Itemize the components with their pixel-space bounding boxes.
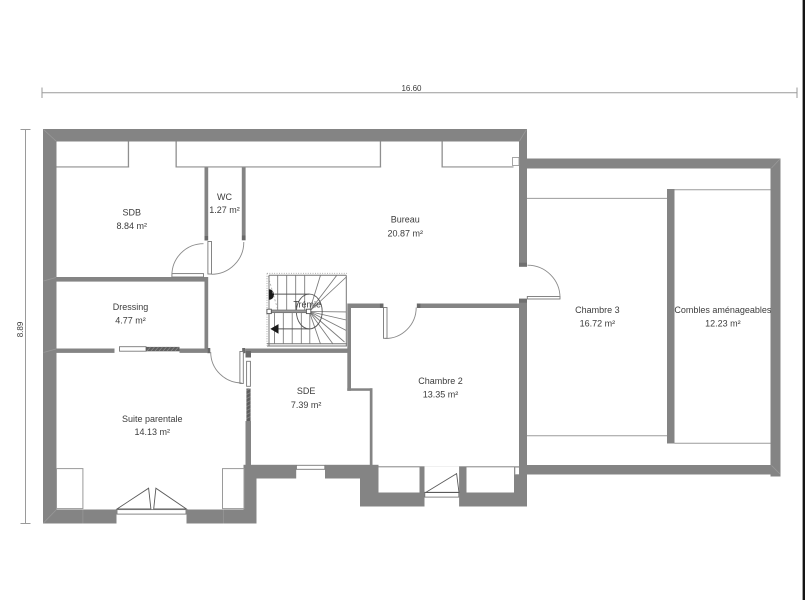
svg-text:14.13 m²: 14.13 m² [135, 427, 171, 437]
svg-text:Chambre 2: Chambre 2 [418, 376, 463, 386]
svg-text:4.77 m²: 4.77 m² [115, 316, 146, 326]
svg-text:7.39 m²: 7.39 m² [291, 400, 322, 410]
svg-text:Dressing: Dressing [113, 302, 149, 312]
svg-text:1.27 m²: 1.27 m² [209, 205, 240, 215]
svg-text:8.89: 8.89 [16, 321, 25, 337]
svg-text:SDE: SDE [297, 386, 316, 396]
svg-text:SDB: SDB [122, 207, 141, 217]
svg-text:16.72 m²: 16.72 m² [580, 319, 616, 329]
svg-text:Bureau: Bureau [391, 215, 420, 225]
svg-text:16.60: 16.60 [401, 84, 422, 93]
svg-text:12.23 m²: 12.23 m² [705, 319, 741, 329]
svg-text:13.35 m²: 13.35 m² [423, 390, 459, 400]
svg-text:Combles aménageables: Combles aménageables [674, 305, 772, 315]
svg-text:WC: WC [217, 192, 232, 202]
svg-text:20.87 m²: 20.87 m² [388, 228, 424, 238]
svg-text:Trémie: Trémie [293, 299, 321, 309]
svg-text:Suite parentale: Suite parentale [122, 414, 183, 424]
svg-text:Chambre 3: Chambre 3 [575, 305, 620, 315]
svg-text:8.84 m²: 8.84 m² [116, 221, 147, 231]
